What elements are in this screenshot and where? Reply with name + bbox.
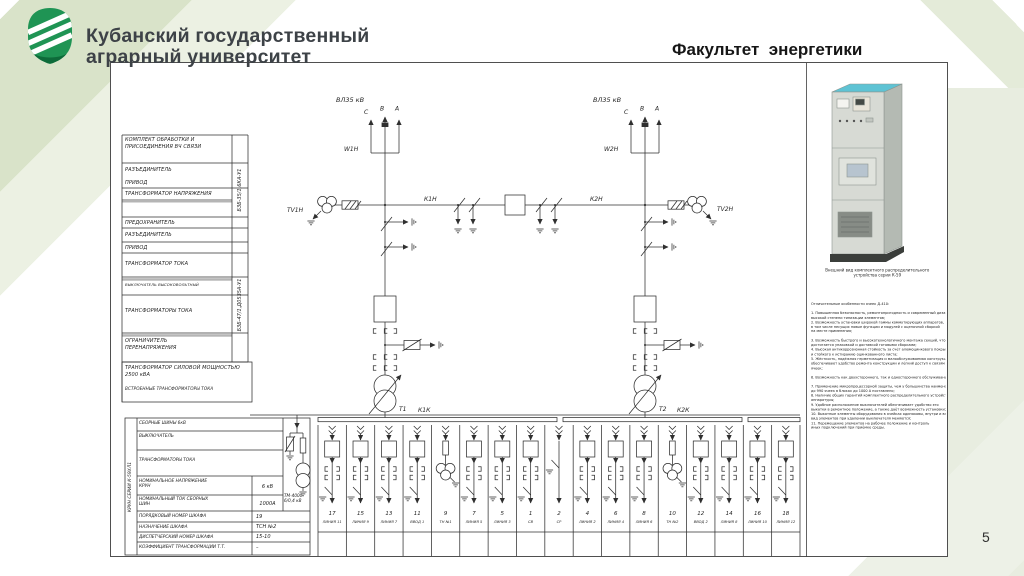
t2-label: Т2	[659, 406, 667, 413]
cell-number: 16	[754, 511, 761, 517]
schematic-labels: ВЛ35 кВ ВЛ35 кВ С В А С В А W1Н W2Н К1Н …	[287, 96, 734, 414]
cell-name: ЛИНИЯ 9	[351, 520, 369, 524]
cell-name: ЛИНИЯ 5	[465, 520, 483, 524]
cell-number: 4	[586, 511, 590, 517]
phase-b-right: В	[640, 106, 644, 113]
cell-name: ЛИНИЯ 8	[720, 520, 738, 524]
cell-name: ВВОД 2	[694, 520, 709, 524]
w2-label: W2Н	[604, 146, 619, 153]
phase-a-left: А	[394, 106, 399, 113]
cell-number: 1	[529, 511, 533, 517]
k2k-label: К2К	[677, 407, 690, 414]
cell-labels: 17ЛИНИЯ 1115ЛИНИЯ 913ЛИНИЯ 711ВВОД 19ТН …	[322, 511, 796, 524]
cell-number: 7	[472, 511, 476, 517]
cell-name: СР	[557, 520, 563, 524]
krun-series-label: КРУН СЕРИИ К-59ХЛ1	[127, 462, 133, 512]
university-logo	[24, 6, 76, 66]
cell-name: ВВОД 1	[410, 520, 424, 524]
line-label-left: ВЛ35 кВ	[336, 96, 365, 104]
cell-name: ЛИНИЯ 4	[606, 520, 624, 524]
feeder-w1	[369, 117, 443, 418]
cell-name: ЛИНИЯ 11	[322, 520, 342, 524]
phase-c-right: С	[624, 109, 629, 116]
tv2-label: ТV2Н	[717, 206, 734, 213]
cell-number: 11	[414, 511, 421, 517]
cell-name: ЛИНИЯ 2	[578, 520, 596, 524]
cell-name: ЛИНИЯ 10	[747, 520, 768, 524]
cell-number: 6	[614, 511, 618, 517]
t1-label: Т1	[399, 406, 406, 413]
cell-number: 17	[329, 511, 336, 517]
cell-symbols	[319, 426, 793, 503]
phase-b-left: В	[380, 106, 384, 113]
cell-name: ТН №1	[440, 520, 452, 524]
phase-a-right: А	[654, 106, 659, 113]
feeder-w2	[629, 117, 703, 418]
cell-name: ТН №2	[666, 520, 679, 524]
phase-c-left: С	[364, 109, 369, 116]
tv2-branch	[644, 196, 717, 224]
krun-table-borders	[125, 418, 310, 555]
equipment-type-code-top: БЗБ-35/1,6КА-У1	[237, 169, 243, 212]
cabinet-meter-icon	[837, 99, 849, 108]
cabinet-vent-grille	[838, 212, 872, 237]
equipment-type-code-bottom: БЗБ-47/1,Д0535А-У1	[237, 279, 243, 332]
cell-name: ЛИНИЯ 7	[380, 520, 398, 524]
cell-number: 18	[782, 511, 789, 517]
cell-number: 15	[357, 511, 364, 517]
cell-number: 8	[642, 511, 646, 517]
cell-number: 14	[726, 511, 733, 517]
cell-number: 9	[444, 511, 448, 517]
bus-6kv	[250, 415, 800, 422]
tsn-cell-symbols	[285, 415, 310, 496]
cell-number: 13	[385, 511, 392, 517]
w1-label: W1Н	[344, 146, 359, 153]
cell-number: 5	[501, 511, 505, 517]
tv1-label: ТV1Н	[287, 207, 304, 214]
line-label-right: ВЛ35 кВ	[593, 96, 622, 104]
cell-number: 12	[697, 511, 704, 517]
cell-number: 2	[557, 511, 561, 517]
substation-single-line-diagram: БЗБ-35/1,6КА-У1 БЗБ-47/1,Д0535А-У1 КРУН …	[0, 0, 1024, 576]
cell-name: ЛИНИЯ 3	[493, 520, 511, 524]
cell-name: СВ	[528, 520, 534, 524]
k1n-label: К1Н	[424, 196, 437, 203]
equipment-table-borders	[122, 135, 252, 402]
cell-name: ЛИНИЯ 12	[775, 520, 796, 524]
cell-name: ЛИНИЯ 6	[635, 520, 653, 524]
switchgear-photo	[830, 84, 904, 262]
cell-number: 10	[669, 511, 676, 517]
k1k-label: К1К	[418, 407, 431, 414]
tv1-branch	[307, 196, 386, 224]
k2n-label: К2Н	[590, 196, 603, 203]
